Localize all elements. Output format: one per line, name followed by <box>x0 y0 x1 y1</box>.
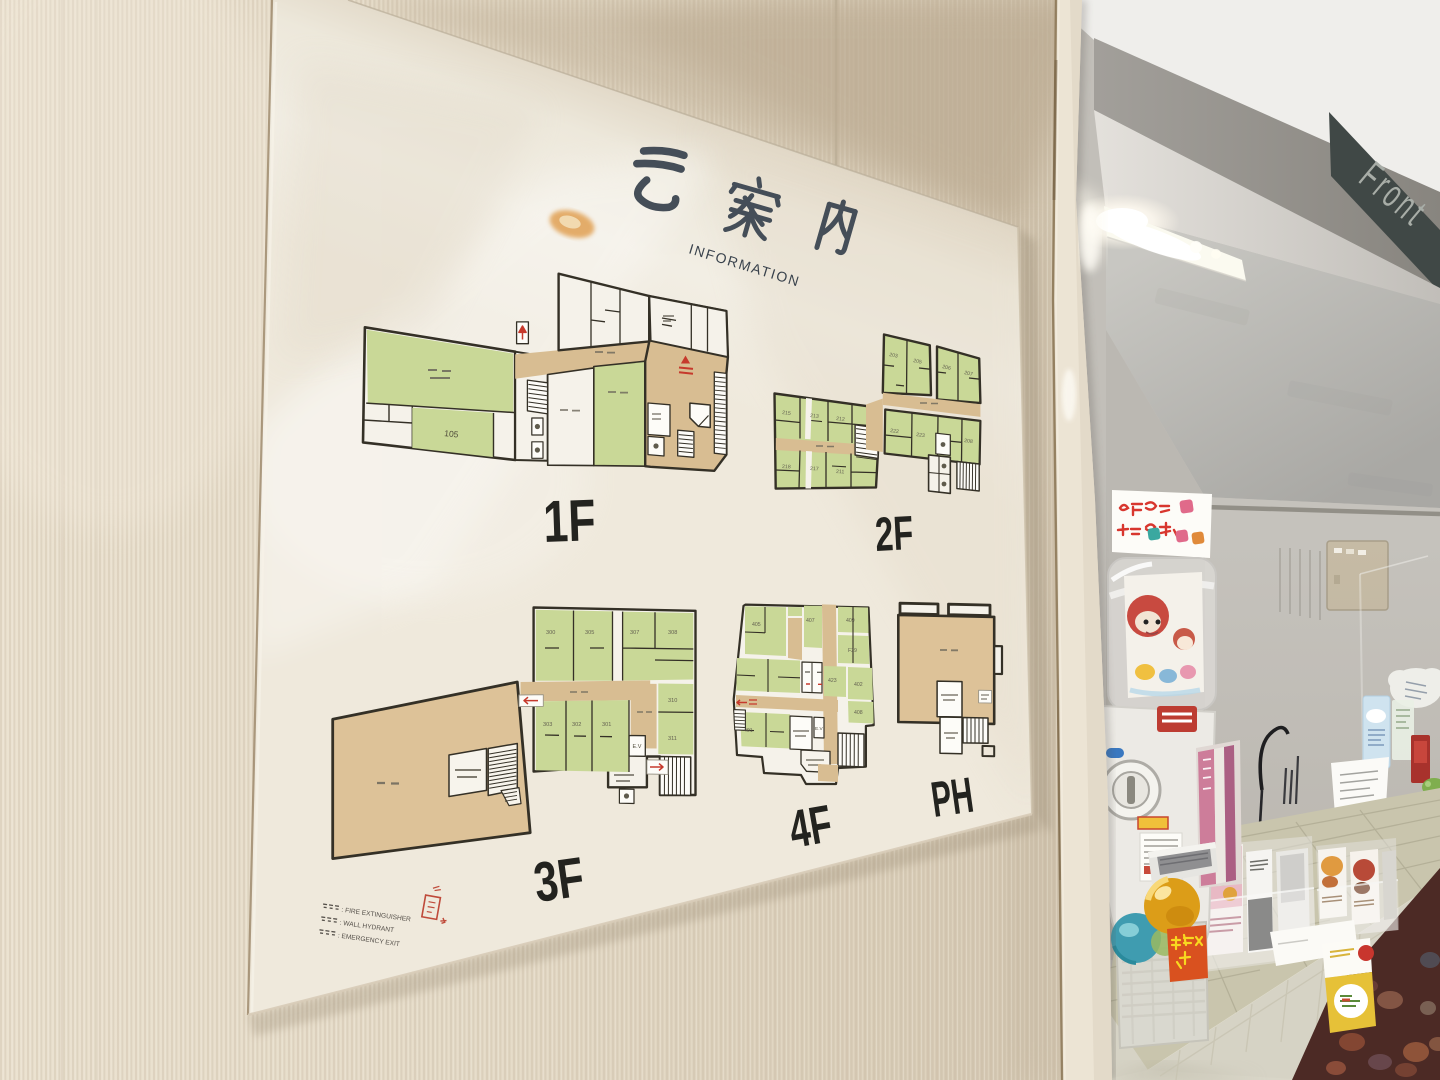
svg-text:405: 405 <box>752 622 761 628</box>
svg-text:302: 302 <box>572 722 581 728</box>
svg-text:301: 301 <box>602 722 611 728</box>
svg-text:307: 307 <box>630 630 639 636</box>
svg-text:212: 212 <box>836 416 845 423</box>
svg-text:401: 401 <box>744 728 753 734</box>
svg-text:E.V: E.V <box>815 726 824 732</box>
svg-text:407: 407 <box>806 618 815 624</box>
svg-text:310: 310 <box>668 698 677 704</box>
svg-text:PH: PH <box>928 767 977 828</box>
svg-text:423: 423 <box>828 678 837 684</box>
svg-text:305: 305 <box>585 630 594 636</box>
svg-text:215: 215 <box>782 410 791 417</box>
svg-text:105: 105 <box>444 428 459 439</box>
svg-text:218: 218 <box>782 464 791 470</box>
svg-text:308: 308 <box>668 630 677 636</box>
svg-text:211: 211 <box>836 469 845 475</box>
svg-text:1F: 1F <box>542 488 597 555</box>
svg-text:2F: 2F <box>874 506 915 562</box>
svg-text:E.V: E.V <box>633 744 642 750</box>
svg-text:223: 223 <box>916 432 925 439</box>
svg-text:303: 303 <box>543 722 552 728</box>
svg-text:311: 311 <box>668 736 677 742</box>
svg-text:3F: 3F <box>530 845 588 914</box>
svg-text:402: 402 <box>854 682 863 688</box>
svg-text:409: 409 <box>846 618 855 624</box>
svg-text:222: 222 <box>890 428 899 435</box>
svg-text:300: 300 <box>546 630 555 636</box>
svg-text:F29: F29 <box>848 648 857 654</box>
svg-text:217: 217 <box>810 466 819 472</box>
svg-text:213: 213 <box>810 413 819 420</box>
svg-text:408: 408 <box>854 710 863 716</box>
svg-text:208: 208 <box>964 438 973 445</box>
